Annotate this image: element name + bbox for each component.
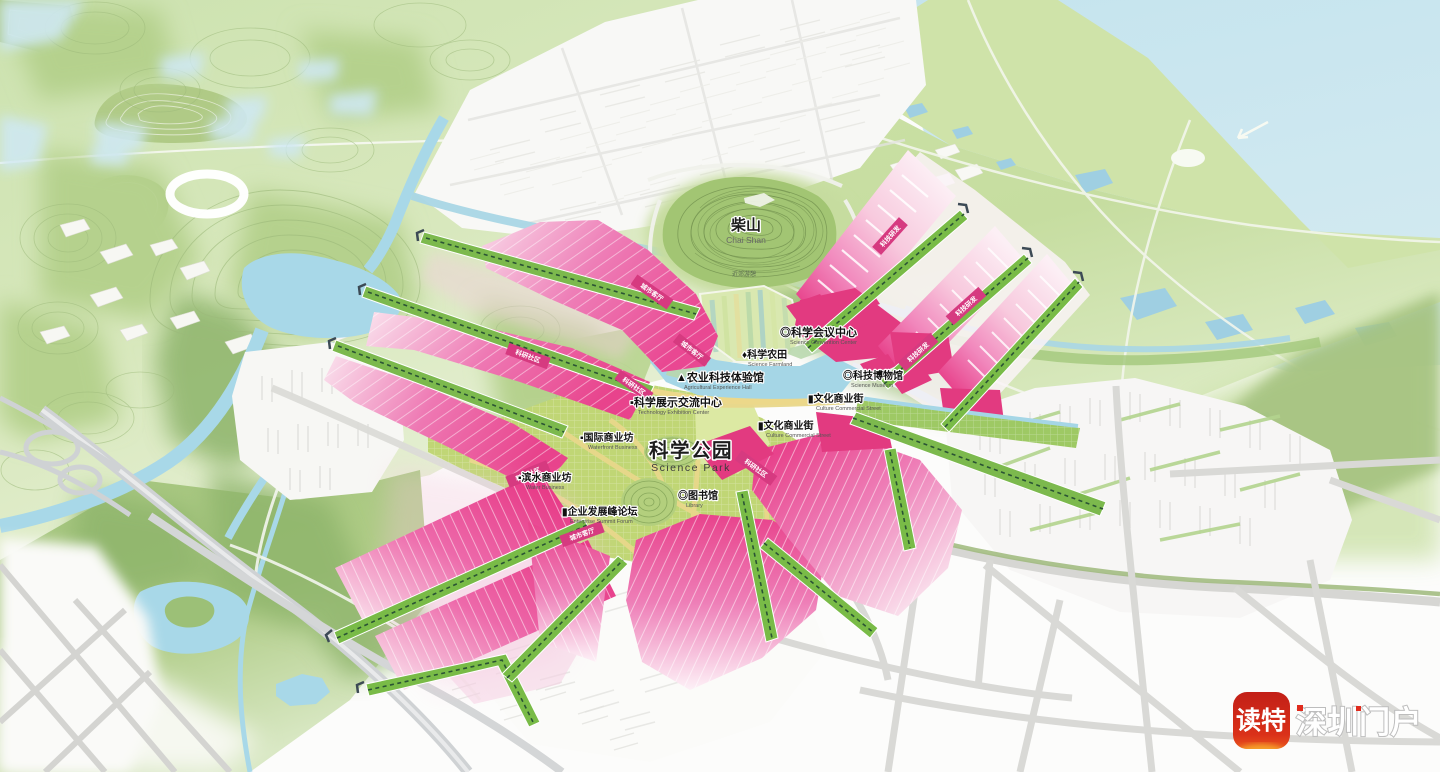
svg-text:▪国际商业坊: ▪国际商业坊 [580,431,634,444]
svg-text:Waterfront Business: Waterfront Business [588,445,638,451]
svg-text:读特: 读特 [1236,707,1286,735]
svg-text:Science Museum: Science Museum [851,383,894,389]
svg-text:Culture Commercial Street: Culture Commercial Street [766,433,831,439]
svg-text:▲农业科技体验馆: ▲农业科技体验馆 [676,370,764,384]
svg-text:Enterprise Summit Forum: Enterprise Summit Forum [570,519,633,525]
svg-text:Science Convention Center: Science Convention Center [790,340,857,346]
svg-text:♦科学农田: ♦科学农田 [742,348,787,361]
svg-text:▪科学展示交流中心: ▪科学展示交流中心 [630,395,722,409]
svg-text:Agricultural Experience Hall: Agricultural Experience Hall [684,385,752,391]
svg-text:Science Farmland: Science Farmland [748,362,792,368]
svg-text:Library: Library [686,503,703,509]
svg-text:◎图书馆: ◎图书馆 [678,489,718,502]
svg-text:▮文化商业街: ▮文化商业街 [808,392,864,405]
svg-text:▮企业发展峰论坛: ▮企业发展峰论坛 [562,505,638,518]
svg-text:Water Business: Water Business [526,485,565,491]
svg-text:Technology Exhibition Center: Technology Exhibition Center [638,410,709,416]
svg-text:◎科学会议中心: ◎科学会议中心 [780,325,857,339]
svg-text:Chai Shan: Chai Shan [726,235,766,245]
svg-text:▪滨水商业坊: ▪滨水商业坊 [518,471,572,484]
svg-text:近郊游憩: 近郊游憩 [732,270,756,278]
svg-text:Culture Commercial Street: Culture Commercial Street [816,406,881,412]
svg-text:柴山: 柴山 [730,216,761,234]
svg-text:科学公园: 科学公园 [649,439,733,462]
svg-text:▮文化商业街: ▮文化商业街 [758,419,814,432]
svg-text:Science Park: Science Park [651,462,731,474]
svg-text:◎科技博物馆: ◎科技博物馆 [843,369,903,382]
